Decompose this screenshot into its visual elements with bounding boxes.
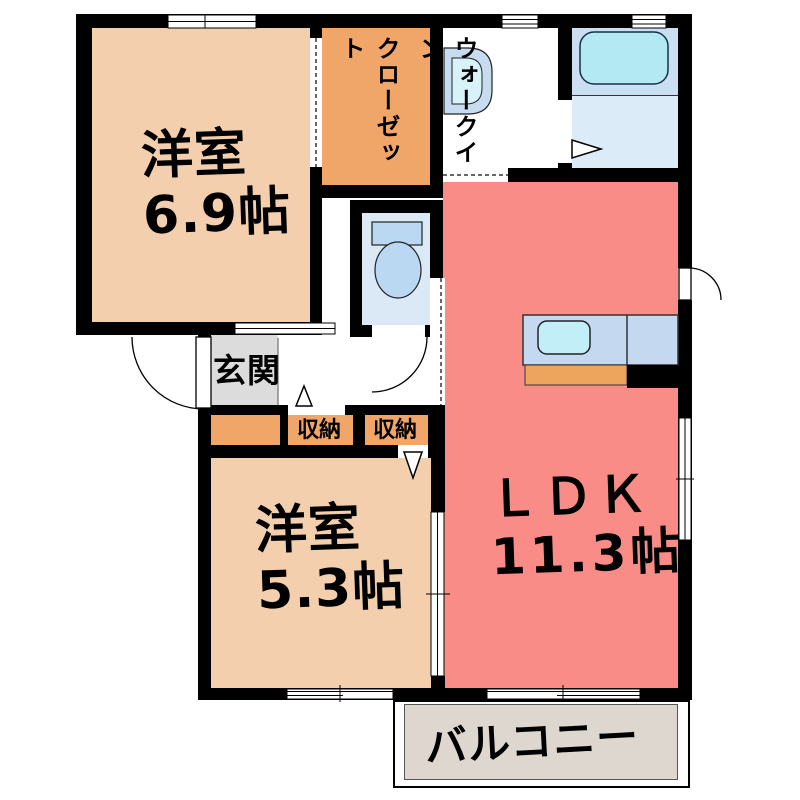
label-ldk: ＬＤＫ 11.3帖 <box>488 465 685 587</box>
wedge-bedroom2 <box>404 452 422 478</box>
wedge-storage1 <box>296 386 312 406</box>
bathtub-icon <box>580 32 668 84</box>
bedroom1-name: 洋室 <box>140 122 290 187</box>
label-bedroom1: 洋室 6.9帖 <box>140 122 292 247</box>
window-ldk-balcony <box>487 685 640 702</box>
label-genkan: 玄関 <box>213 352 281 390</box>
sliding-door-bedroom2-ldk <box>426 512 450 676</box>
door-wedges <box>296 140 601 478</box>
window-bedroom2-bottom <box>287 685 393 702</box>
wic-line2: クローゼット <box>334 36 404 186</box>
toilet-door-arc <box>372 337 427 392</box>
label-walkin-closet: ウォークイン クローゼット <box>330 36 486 186</box>
wic-line1: ウォークイン <box>412 36 482 186</box>
ldk-right-door-arc <box>689 268 721 300</box>
window-bathroom-top <box>632 15 666 28</box>
ldk-size: 11.3帖 <box>490 522 685 586</box>
bedroom2-name: 洋室 <box>254 497 404 562</box>
bedroom2-size: 5.3帖 <box>256 557 406 622</box>
sliding-door-bedroom1 <box>235 323 335 334</box>
kitchen-sink-icon <box>538 321 590 354</box>
kitchen-counter <box>523 315 678 388</box>
bedroom1-size: 6.9帖 <box>142 182 292 247</box>
label-storage2: 収納 <box>373 418 417 443</box>
window-bedroom1-top <box>168 15 256 28</box>
entrance-door-arc <box>132 337 204 409</box>
ldk-name: ＬＤＫ <box>488 465 683 529</box>
ldk-right-door-leaf <box>679 268 691 300</box>
floorplan-canvas: 洋室 6.9帖 ウォークイン クローゼット 玄関 収納 収納 洋室 5.3帖 Ｌ… <box>0 0 800 800</box>
label-bedroom2: 洋室 5.3帖 <box>254 497 406 622</box>
window-washroom-top <box>502 15 538 28</box>
label-storage1: 収納 <box>297 418 341 443</box>
entrance-door-leaf <box>196 337 211 408</box>
toilet-icon <box>372 222 422 298</box>
wedge-bathroom <box>572 140 601 158</box>
